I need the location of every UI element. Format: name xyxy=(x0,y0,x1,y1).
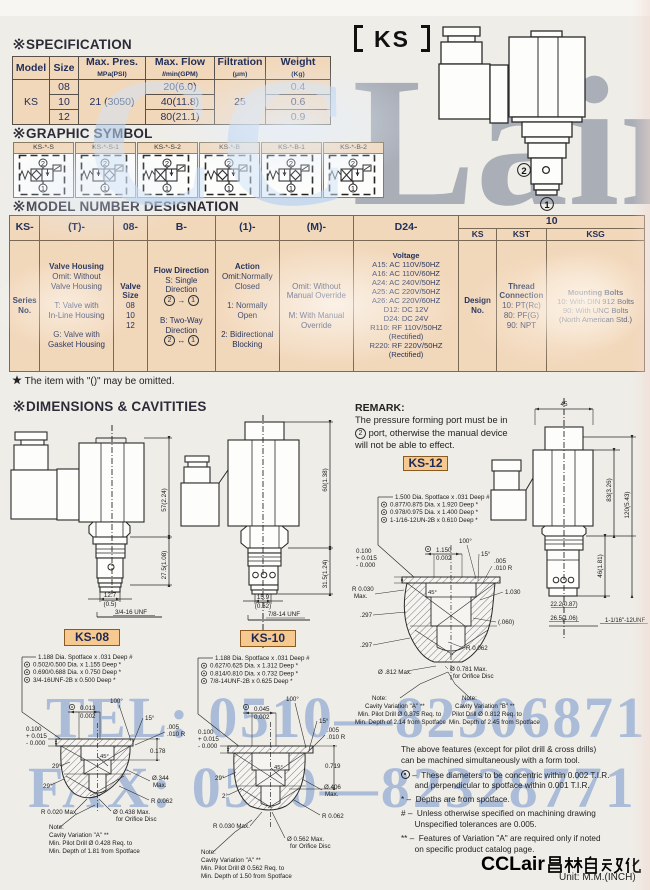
svg-text:45°: 45° xyxy=(274,765,283,771)
svg-text:0.045: 0.045 xyxy=(254,706,270,713)
svg-text:Min. Depth of 1.81 from Spotfa: Min. Depth of 1.81 from Spotface xyxy=(49,848,140,855)
svg-text:.005: .005 xyxy=(327,727,340,734)
svg-text:Min. Depth of 2.45 from Spotfa: Min. Depth of 2.45 from Spotface xyxy=(449,719,540,726)
svg-text:0.100: 0.100 xyxy=(356,548,372,555)
svg-text:R 0.030 Max.: R 0.030 Max. xyxy=(213,823,250,830)
svg-text:Min. Pilot Drill Ø 0.875 Req.: Min. Pilot Drill Ø 0.875 Req. to xyxy=(358,711,442,718)
svg-text:.010 R: .010 R xyxy=(167,731,186,738)
svg-text:57(2.24): 57(2.24) xyxy=(161,488,168,511)
svg-text:Ø 0.781 Max.: Ø 0.781 Max. xyxy=(450,666,487,673)
svg-text:100°: 100° xyxy=(110,698,123,705)
svg-text:15°: 15° xyxy=(481,551,491,558)
svg-text:29°: 29° xyxy=(43,783,53,790)
svg-text:(.060): (.060) xyxy=(498,619,514,626)
svg-text:Ø .812 Max.: Ø .812 Max. xyxy=(378,669,412,676)
svg-text:.005: .005 xyxy=(494,558,507,565)
svg-text:.010 R: .010 R xyxy=(494,565,513,572)
svg-text:Cavity Variation "A" **: Cavity Variation "A" ** xyxy=(201,857,261,864)
svg-text:- 0.000: - 0.000 xyxy=(26,740,46,747)
svg-text:(0.5): (0.5) xyxy=(104,601,117,608)
svg-text:1.500 Dia. Spotface x .031 Dee: 1.500 Dia. Spotface x .031 Deep # xyxy=(395,494,490,501)
svg-text:7/8-14 UNF: 7/8-14 UNF xyxy=(268,611,300,618)
svg-text:for Orifice Disc: for Orifice Disc xyxy=(116,816,157,823)
svg-text:Max.: Max. xyxy=(153,782,167,789)
svg-text:Ø 0.562 Max.: Ø 0.562 Max. xyxy=(287,836,324,843)
svg-text:1-1/16-12UN-2B x 0.610 Deep *: 1-1/16-12UN-2B x 0.610 Deep * xyxy=(390,517,478,524)
svg-text:Cavity Variation "B" **: Cavity Variation "B" ** xyxy=(455,703,515,710)
svg-text:0.502/0.500 Dia. x 1.155 Deep: 0.502/0.500 Dia. x 1.155 Deep * xyxy=(33,662,122,669)
svg-text:Max.: Max. xyxy=(325,791,339,798)
svg-text:1.150: 1.150 xyxy=(436,547,452,554)
svg-text:0.002: 0.002 xyxy=(254,714,270,721)
svg-text:Max.: Max. xyxy=(354,593,368,600)
svg-text:0.100: 0.100 xyxy=(198,729,214,736)
svg-text:1.030: 1.030 xyxy=(505,589,521,596)
svg-text:0.978/0.975 Dia. x 1.400 Deep: 0.978/0.975 Dia. x 1.400 Deep * xyxy=(390,509,479,516)
svg-text:27.5(1.08): 27.5(1.08) xyxy=(161,551,168,580)
svg-text:3/4-16 UNF: 3/4-16 UNF xyxy=(115,609,147,616)
svg-text:.010 R: .010 R xyxy=(327,734,346,741)
svg-text:+ 0.015: + 0.015 xyxy=(356,555,377,562)
svg-text:83(3.26): 83(3.26) xyxy=(606,478,613,501)
svg-text:0.627/0.625 Dia. x 1.312 Deep: 0.627/0.625 Dia. x 1.312 Deep * xyxy=(210,663,299,670)
svg-text:0.719: 0.719 xyxy=(325,763,341,770)
svg-text:R 0.030: R 0.030 xyxy=(352,586,374,593)
svg-text:Min. Pilot Drill Ø 0.428 Req.: Min. Pilot Drill Ø 0.428 Req. to xyxy=(49,840,133,847)
svg-text:for Orifice Disc: for Orifice Disc xyxy=(290,843,331,850)
svg-text:0.100: 0.100 xyxy=(26,726,42,733)
svg-text:R 0.062: R 0.062 xyxy=(466,645,488,652)
svg-text:1.188 Dia. Spotface x .031 Dee: 1.188 Dia. Spotface x .031 Deep # xyxy=(215,655,310,662)
svg-text:Note:: Note: xyxy=(49,824,64,831)
svg-text:Ø 0.438 Max.: Ø 0.438 Max. xyxy=(113,809,150,816)
svg-text:100°: 100° xyxy=(286,696,299,703)
svg-text:60(1.38): 60(1.38) xyxy=(322,468,329,491)
svg-text:120(5.43): 120(5.43) xyxy=(624,492,631,519)
svg-text:1-1/16"-12UNF: 1-1/16"-12UNF xyxy=(605,618,645,624)
svg-text:0.178: 0.178 xyxy=(150,748,166,755)
svg-text:46(1.81): 46(1.81) xyxy=(597,554,604,577)
svg-text:12.7: 12.7 xyxy=(104,592,117,599)
svg-text:+ 0.015: + 0.015 xyxy=(198,736,219,743)
svg-text:26.5(1.06): 26.5(1.06) xyxy=(550,616,577,622)
svg-text:0.814/0.810 Dia. x 0.732 Deep: 0.814/0.810 Dia. x 0.732 Deep * xyxy=(210,670,299,677)
svg-text:.297: .297 xyxy=(360,612,373,619)
svg-text:0.877/0.875 Dia. x 1.920 Deep: 0.877/0.875 Dia. x 1.920 Deep * xyxy=(390,502,479,509)
svg-text:.297: .297 xyxy=(360,642,373,649)
svg-text:R 0.062: R 0.062 xyxy=(151,798,173,805)
svg-text:3/4-16UNF-2B x 0.500 Deep *: 3/4-16UNF-2B x 0.500 Deep * xyxy=(33,677,116,684)
svg-text:Ø.406: Ø.406 xyxy=(324,784,341,791)
svg-text:Pilot Drill Ø 0.812 Req. to: Pilot Drill Ø 0.812 Req. to xyxy=(452,711,522,718)
svg-text:+ 0.015: + 0.015 xyxy=(26,733,47,740)
svg-text:.005: .005 xyxy=(167,724,180,731)
svg-text:22.2(0.87): 22.2(0.87) xyxy=(550,602,577,608)
svg-text:Min. Depth of 1.50 from Spotfa: Min. Depth of 1.50 from Spotface xyxy=(201,873,292,880)
svg-text:Ø.344: Ø.344 xyxy=(152,775,169,782)
svg-text:100°: 100° xyxy=(459,538,472,545)
svg-text:15°: 15° xyxy=(145,715,155,722)
svg-text:7/8-14UNF-2B x 0.625 Deep *: 7/8-14UNF-2B x 0.625 Deep * xyxy=(210,678,293,685)
svg-text:0.690/0.688 Dia. x 0.750 Deep: 0.690/0.688 Dia. x 0.750 Deep * xyxy=(33,669,122,676)
svg-text:Cavity Variation "A" **: Cavity Variation "A" ** xyxy=(365,703,425,710)
svg-text:15°: 15° xyxy=(319,718,329,725)
svg-text:45°: 45° xyxy=(100,754,109,760)
svg-text:15.9: 15.9 xyxy=(257,594,270,601)
svg-text:1.188 Dia. Spotface x .031 Dee: 1.188 Dia. Spotface x .031 Deep # xyxy=(38,654,133,661)
svg-text:31.5(1.24): 31.5(1.24) xyxy=(322,560,329,589)
svg-text:for Orifice Disc: for Orifice Disc xyxy=(453,673,494,680)
svg-text:Cavity Variation "A" **: Cavity Variation "A" ** xyxy=(49,832,109,839)
svg-text:29°: 29° xyxy=(215,775,225,782)
svg-text:0.002: 0.002 xyxy=(80,713,96,720)
svg-text:0.002: 0.002 xyxy=(436,555,452,562)
svg-text:Min. Pilot Drill Ø 0.562 Req.: Min. Pilot Drill Ø 0.562 Req. to xyxy=(201,865,285,872)
svg-text:2°: 2° xyxy=(222,793,228,800)
svg-text:0.013: 0.013 xyxy=(80,705,96,712)
svg-text:29°: 29° xyxy=(52,763,62,770)
svg-text:Min. Depth of 2.14 from Spotfa: Min. Depth of 2.14 from Spotface xyxy=(355,719,446,726)
svg-text:- 0.000: - 0.000 xyxy=(198,743,218,750)
svg-text:Note:: Note: xyxy=(372,695,387,702)
svg-text:(0.62): (0.62) xyxy=(255,603,271,610)
svg-text:45°: 45° xyxy=(428,590,437,596)
svg-text:Note:: Note: xyxy=(462,695,477,702)
svg-text:R 0.020 Max.: R 0.020 Max. xyxy=(41,809,78,816)
svg-text:R 0.062: R 0.062 xyxy=(322,813,344,820)
svg-text:- 0.000: - 0.000 xyxy=(356,562,376,569)
svg-text:Note:: Note: xyxy=(201,849,216,856)
